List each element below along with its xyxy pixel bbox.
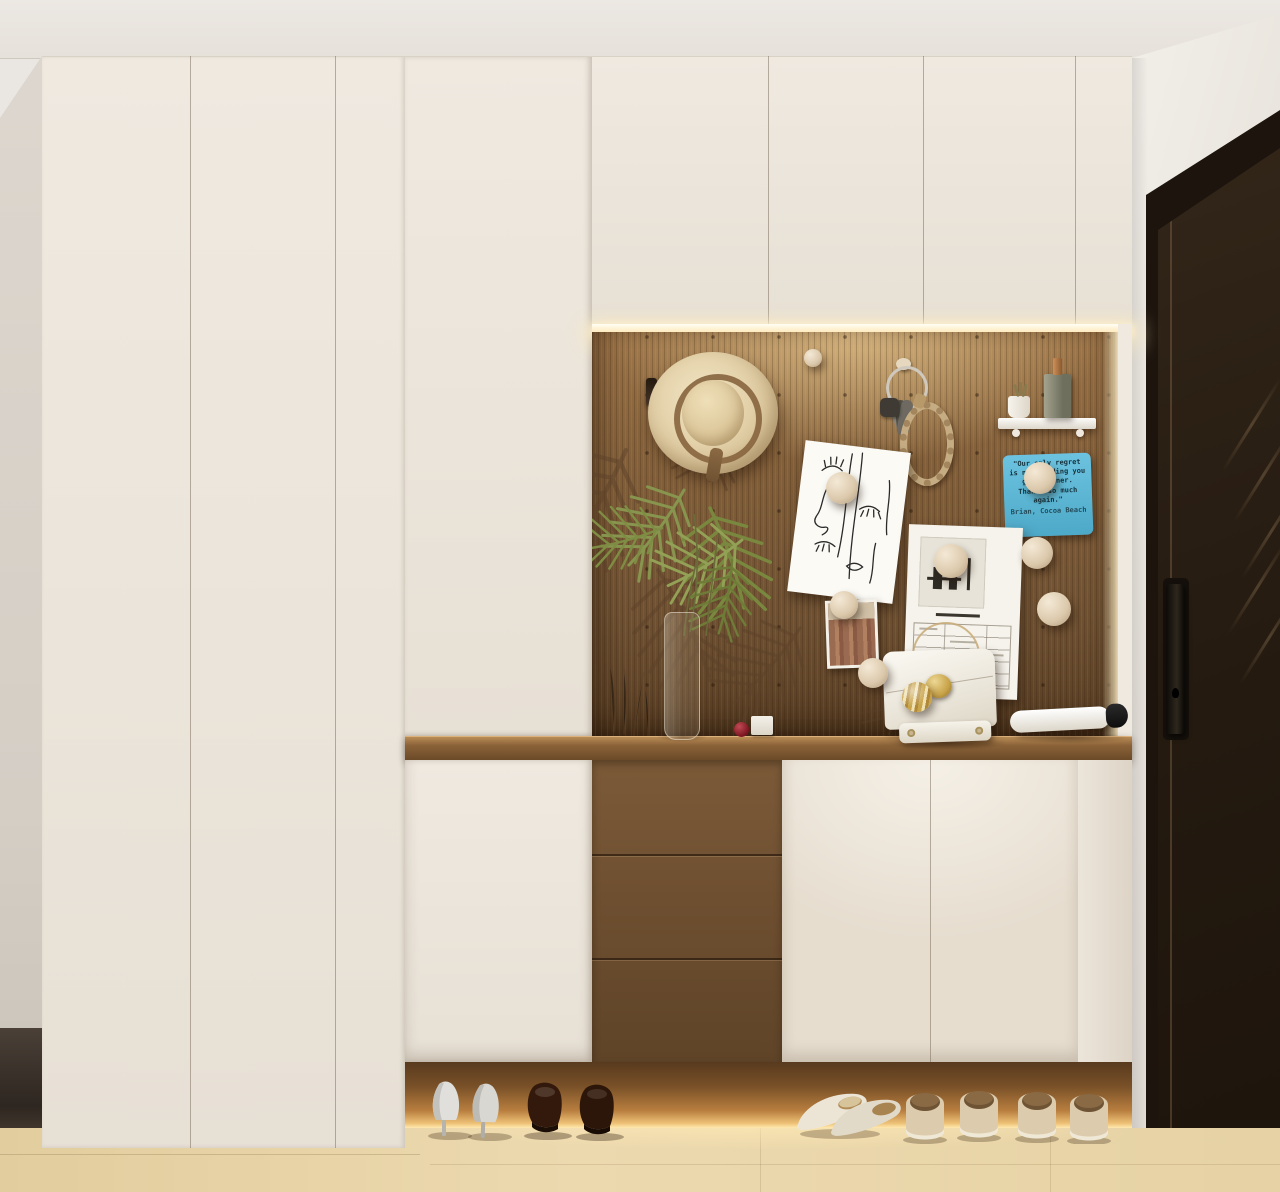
peg-ball	[1037, 592, 1071, 626]
base-cabinet-doors	[782, 760, 1078, 1062]
upper-cabinet-seam	[923, 56, 924, 324]
white-handbag	[882, 648, 999, 748]
entryway-render: "Our only regret is not finding you guys…	[0, 0, 1280, 1192]
bag-grommet	[907, 729, 915, 737]
hat-crown	[682, 380, 744, 446]
left-wardrobe	[42, 56, 405, 1148]
peg-ball	[1021, 537, 1053, 569]
base-door-seam	[930, 760, 931, 1062]
perfume-bottle	[1044, 374, 1071, 418]
left-wall	[0, 0, 43, 1155]
lower-cabinet-door	[405, 760, 592, 1062]
sign-signature: Brian, Cocoa Beach	[1007, 506, 1089, 518]
beige-slippers	[902, 1078, 1114, 1144]
drawer-seam	[592, 854, 782, 856]
brown-dress-shoes	[522, 1076, 628, 1144]
upper-cabinets	[592, 56, 1132, 324]
tall-cabinet-door	[405, 56, 592, 736]
door-handle	[1166, 584, 1184, 734]
line-art-poster	[787, 440, 911, 604]
key-fob	[880, 398, 899, 417]
wardrobe-door-seam	[190, 56, 191, 1148]
upper-cabinet-seam	[1075, 56, 1076, 324]
straw-hat	[648, 352, 778, 478]
peg-ball	[804, 349, 822, 367]
peg-ball	[1024, 462, 1056, 494]
glass-vase	[664, 612, 700, 740]
memo-title-line	[936, 613, 980, 618]
umbrella-handle	[1105, 703, 1128, 728]
cherry	[734, 722, 749, 737]
door-keyhole	[1172, 688, 1179, 698]
wardrobe-door-seam	[335, 56, 336, 1148]
bag-handle-bar	[899, 720, 992, 743]
peg-ball	[830, 591, 858, 619]
bag-grommet	[975, 727, 983, 735]
wood-striped-ball	[902, 682, 932, 712]
upper-cabinet-seam	[768, 56, 769, 324]
drawer-unit	[592, 760, 782, 1062]
white-high-heels	[424, 1078, 518, 1142]
front-door	[1146, 100, 1280, 1192]
line-art-faces	[787, 440, 911, 604]
peg-ball	[826, 472, 858, 504]
peg-ball	[934, 544, 968, 578]
drawer-seam	[592, 958, 782, 960]
folded-umbrella	[1009, 701, 1132, 737]
door-groove	[1227, 540, 1280, 635]
beige-flats	[794, 1084, 904, 1142]
perfume-cap	[1053, 358, 1062, 375]
floor-seam	[0, 1154, 420, 1155]
shelf-peg	[1012, 429, 1020, 437]
wall-corner-shadow	[1132, 58, 1148, 1192]
floor-seam	[430, 1164, 1280, 1165]
ceiling	[0, 0, 1280, 59]
succulent-pot	[1008, 396, 1030, 418]
umbrella-body	[1010, 706, 1111, 733]
floating-shelf	[998, 418, 1096, 429]
shelf-peg	[1076, 429, 1084, 437]
peg-ball	[858, 658, 888, 688]
small-white-box	[751, 716, 773, 735]
